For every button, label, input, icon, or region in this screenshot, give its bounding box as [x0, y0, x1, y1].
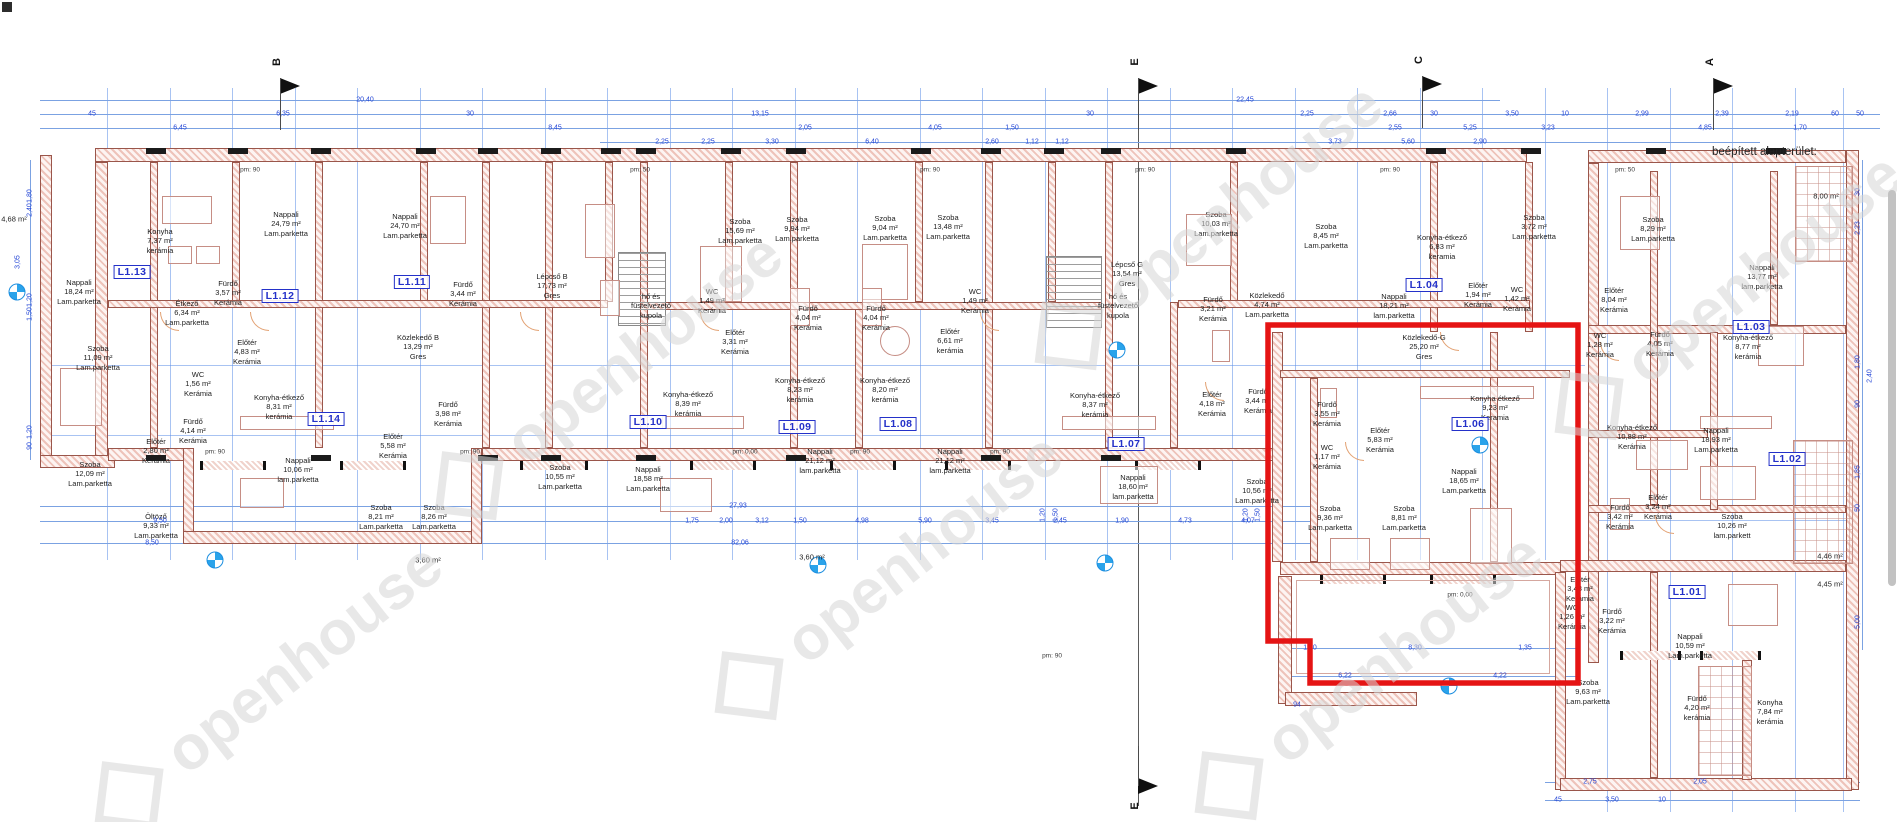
section-marker-pole [1138, 78, 1139, 130]
section-marker-flag [1138, 778, 1158, 794]
floorplan-canvas: Nappali18,24 m²Lam.parkettaKonyha7,37 m²… [0, 0, 1897, 822]
section-marker-flag [1422, 76, 1442, 92]
section-marker-letter: E [1129, 58, 1141, 65]
section-marker-pole [1422, 76, 1423, 128]
section-marker-pole [1713, 78, 1714, 130]
section-marker-flag [1138, 78, 1158, 94]
section-marker-letter: E [1129, 802, 1141, 809]
highlight-rectangle [1268, 325, 1578, 683]
section-marker-letter: B [271, 58, 283, 66]
scrollbar-thumb[interactable] [1888, 190, 1896, 586]
section-marker-pole [1138, 746, 1139, 786]
section-marker-pole [280, 78, 281, 130]
section-marker-flag [280, 78, 300, 94]
section-marker-flag [1713, 78, 1733, 94]
highlight-overlay [0, 0, 1897, 822]
section-marker-letter: A [1704, 58, 1716, 66]
section-marker-letter: C [1413, 56, 1425, 64]
